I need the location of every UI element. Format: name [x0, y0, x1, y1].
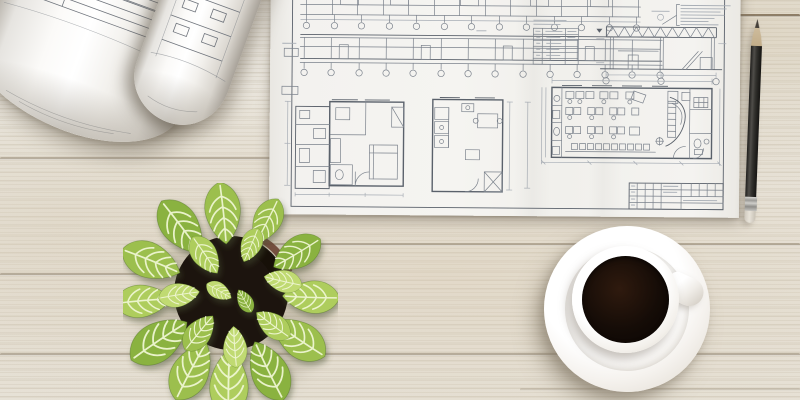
wood-plank-groove [0, 157, 276, 160]
drawing-truss-section [596, 11, 727, 85]
drawing-elevation-long [282, 34, 664, 97]
drawing-schedule-table [533, 20, 578, 64]
pencil-ferrule [744, 197, 757, 211]
wood-plank-groove [264, 243, 800, 246]
wood-plank-groove [736, 14, 800, 17]
wood-plank-groove [520, 388, 800, 391]
pencil-body [745, 46, 762, 197]
desk-scene [0, 0, 800, 400]
pencil-tip [751, 19, 763, 46]
drawing-office-plan [541, 77, 722, 165]
drawing-annotation-notes [662, 4, 730, 26]
coffee-surface [582, 256, 669, 343]
blueprint-linework [269, 0, 741, 218]
sheet-border-frame [291, 0, 725, 210]
drawing-title-block [629, 183, 723, 210]
drawing-elevation-top [300, 0, 640, 32]
blueprint-sheet [269, 0, 741, 218]
drawing-apartment-plan-right [432, 97, 531, 192]
plant-graphic [123, 183, 338, 400]
pencil-eraser [744, 211, 755, 223]
pencil [744, 19, 763, 223]
potted-plant [123, 183, 338, 400]
